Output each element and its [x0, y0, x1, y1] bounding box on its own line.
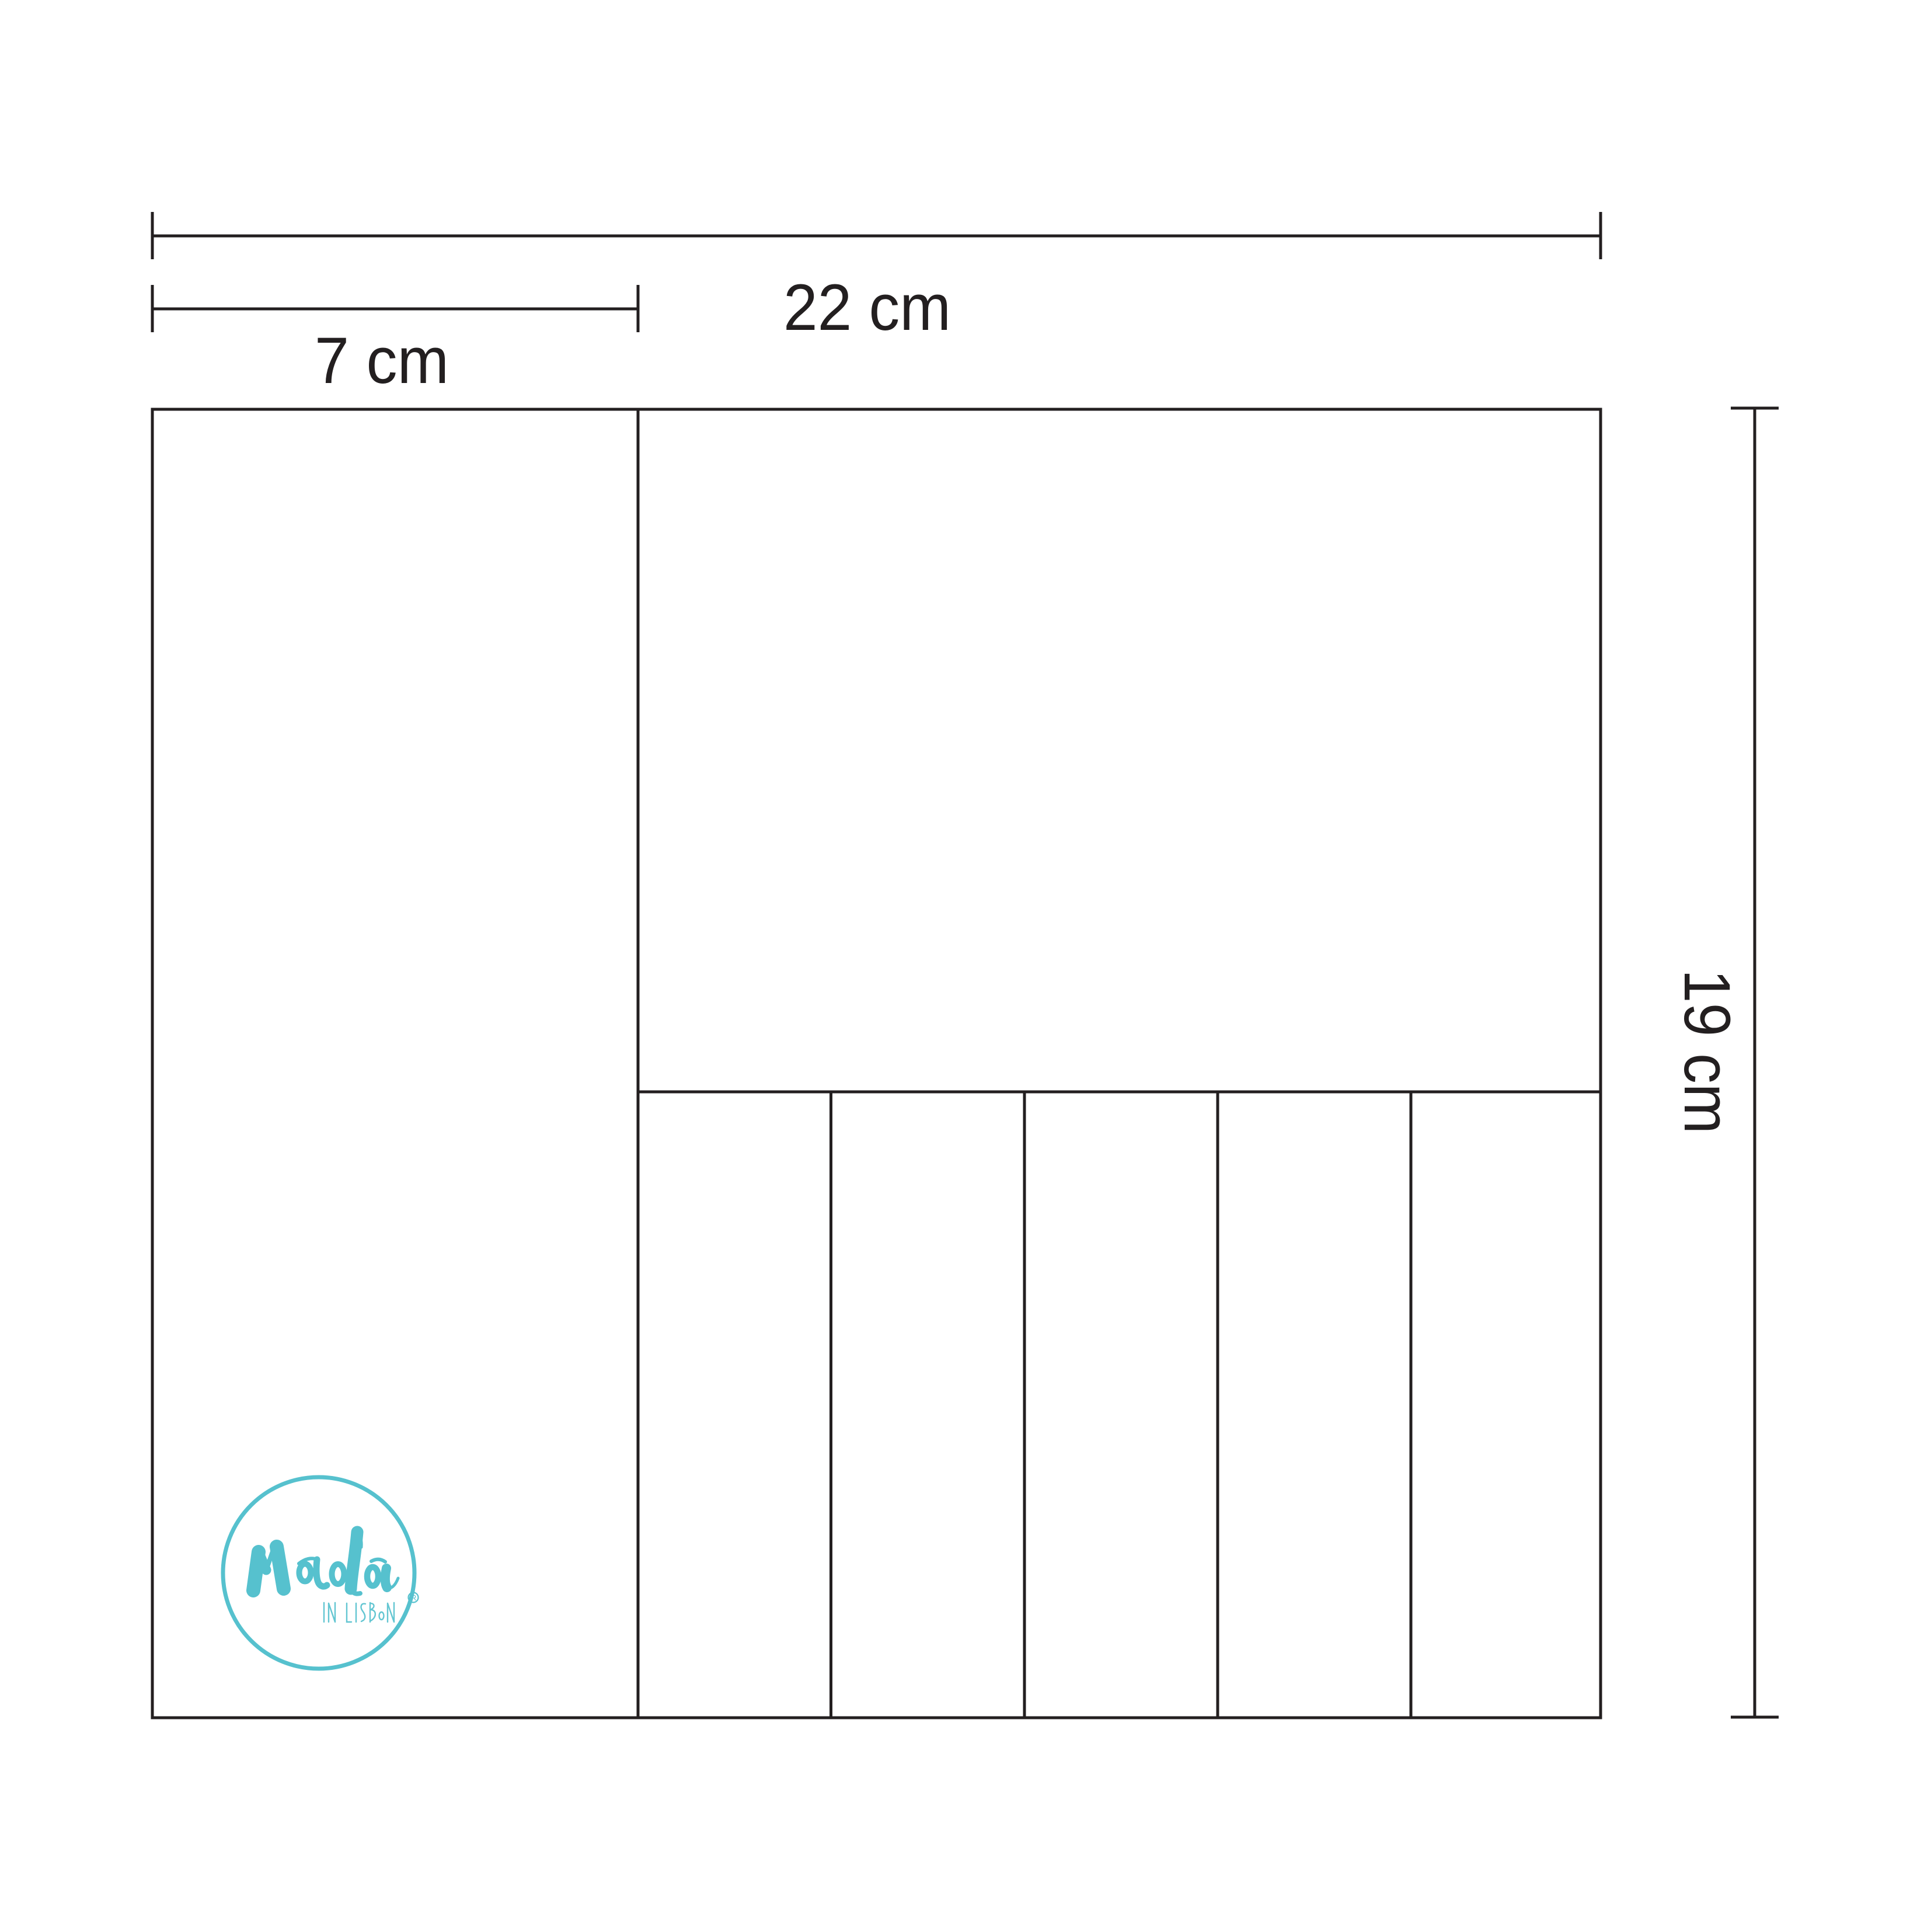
- svg-text:7 cm: 7 cm: [315, 324, 449, 397]
- svg-text:22 cm: 22 cm: [783, 271, 951, 344]
- svg-text:R: R: [411, 1593, 416, 1602]
- svg-text:19 cm: 19 cm: [1671, 969, 1744, 1134]
